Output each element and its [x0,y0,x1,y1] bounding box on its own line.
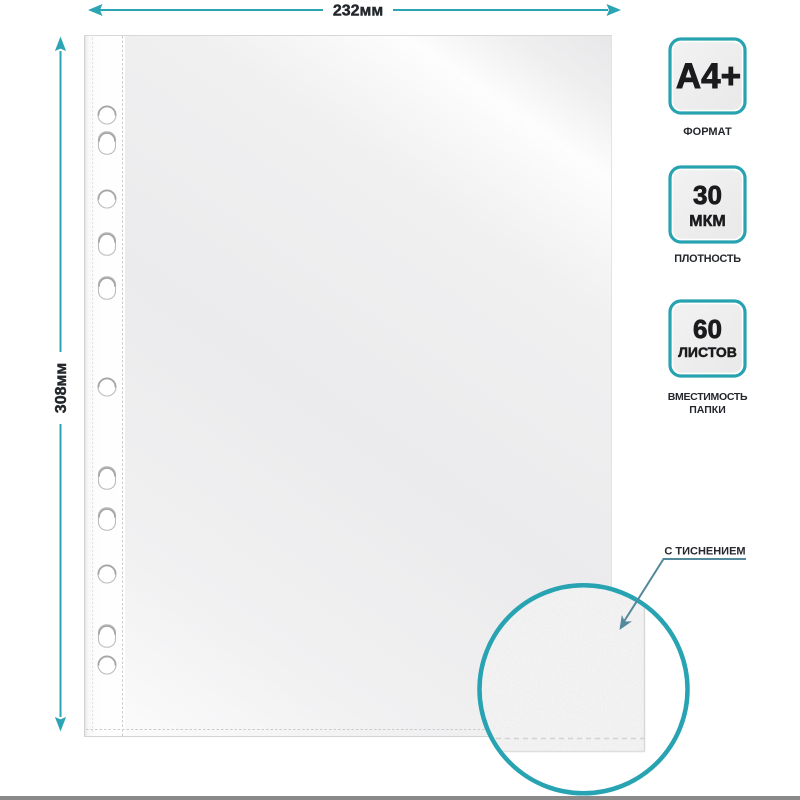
svg-text:308мм: 308мм [53,363,70,413]
svg-text:30: 30 [693,180,722,210]
svg-text:МКМ: МКМ [689,213,725,230]
svg-text:232мм: 232мм [333,3,383,20]
svg-text:ВМЕСТИМОСТЬ: ВМЕСТИМОСТЬ [668,391,748,403]
svg-text:ПЛОТНОСТЬ: ПЛОТНОСТЬ [674,253,741,265]
svg-text:С ТИСНЕНИЕМ: С ТИСНЕНИЕМ [664,546,745,558]
svg-text:ЛИСТОВ: ЛИСТОВ [678,344,737,360]
svg-text:ПАПКИ: ПАПКИ [689,404,726,416]
svg-text:60: 60 [693,314,722,344]
svg-text:A4+: A4+ [676,57,741,96]
svg-text:ФОРМАТ: ФОРМАТ [683,126,732,138]
